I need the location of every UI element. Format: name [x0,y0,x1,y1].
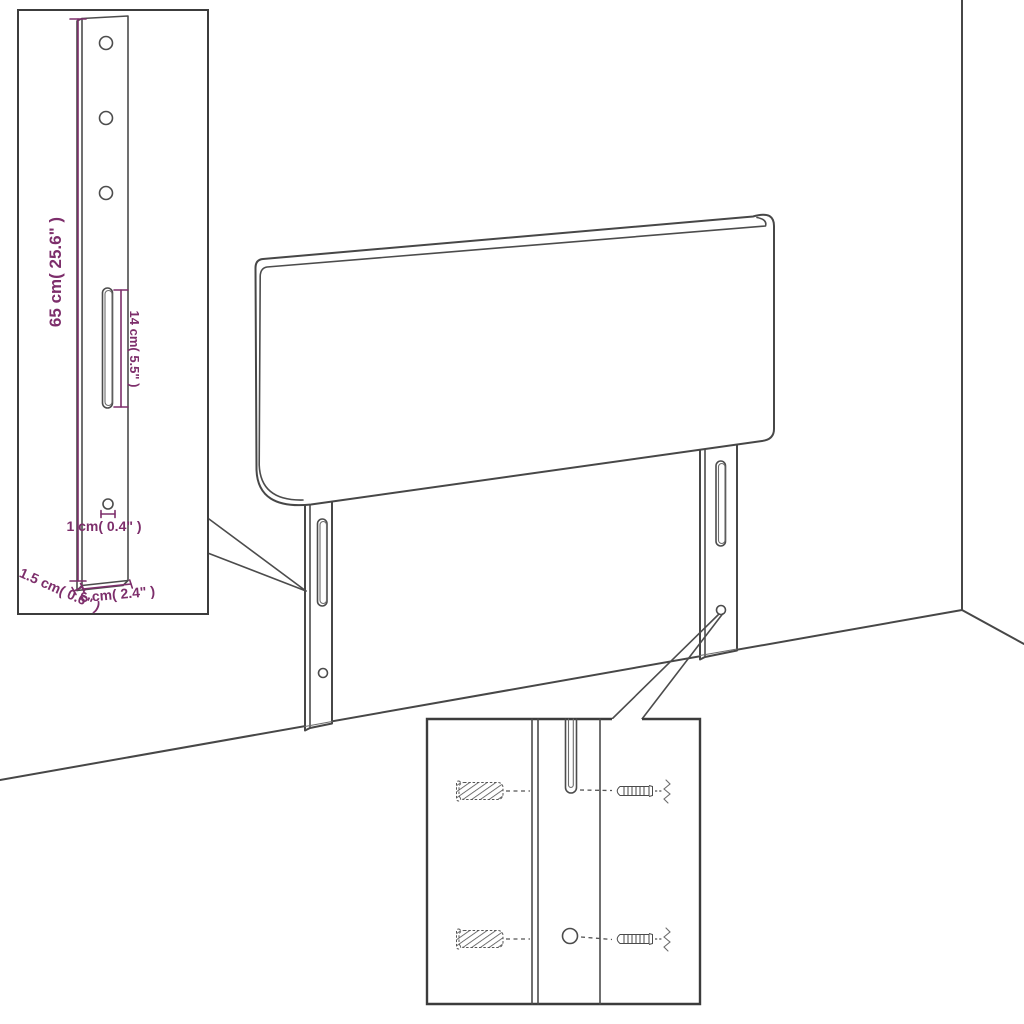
right-leg-hole [717,606,726,615]
callout-line-right [642,614,723,719]
headboard-outline [256,215,775,505]
product-diagram: 65 cm( 25.6" ) 14 cm( 5.5" ) 1 cm( 0.4" … [0,0,1024,1024]
screw-detail-box [427,719,700,1004]
left-leg-slot [318,519,328,606]
screw-detail-bg [427,719,700,1004]
leg-detail-callout [209,519,306,591]
wall-plug-icon [457,781,504,801]
label-leg-height: 65 cm( 25.6" ) [46,217,65,327]
diagram-canvas: 65 cm( 25.6" ) 14 cm( 5.5" ) 1 cm( 0.4" … [0,0,1024,1024]
detail-small-hole [103,499,113,509]
detail-hole-top [100,37,113,50]
label-slot-length: 14 cm( 5.5" ) [127,311,142,388]
detail-hole-lower [100,187,113,200]
callout-line-left [612,614,719,719]
callout-line-upper [209,519,306,591]
callout-line-lower [209,554,306,592]
headboard [256,215,775,505]
detail-slot [103,288,113,408]
wall-plug-icon [457,929,504,949]
left-leg-hole [319,669,328,678]
detail-hole-middle [100,112,113,125]
leg-detail-box: 65 cm( 25.6" ) 14 cm( 5.5" ) 1 cm( 0.4" … [17,10,208,614]
right-leg-slot [716,461,726,546]
detail-hole-section [563,929,578,944]
label-hole-diameter: 1 cm( 0.4" ) [66,518,141,534]
